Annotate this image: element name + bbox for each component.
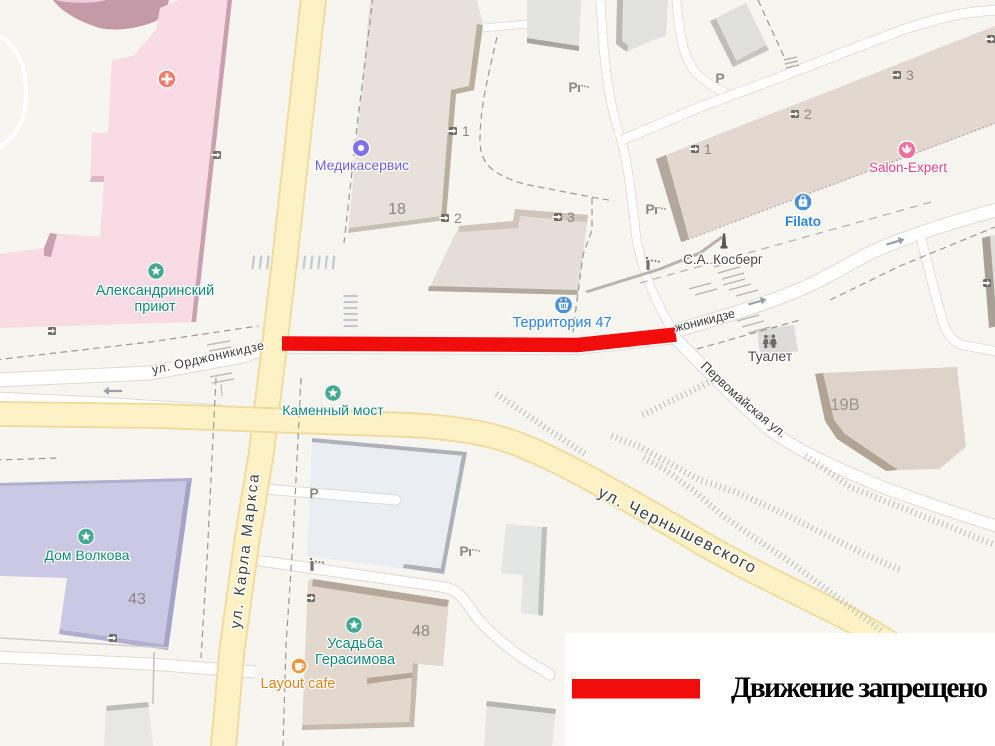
svg-text:Герасимова: Герасимова [315, 652, 396, 668]
svg-text:P: P [309, 485, 318, 501]
svg-text:Туалет: Туалет [748, 348, 793, 364]
svg-text:С.А. Косберг: С.А. Косберг [683, 252, 763, 267]
svg-text:3: 3 [567, 209, 575, 225]
svg-text:19В: 19В [830, 396, 859, 414]
svg-text:3: 3 [906, 67, 914, 83]
svg-text:Дом Волкова: Дом Волкова [44, 547, 129, 563]
svg-text:18: 18 [388, 201, 406, 218]
svg-text:Медикасервис: Медикасервис [315, 157, 409, 173]
svg-text:Salon-Expert: Salon-Expert [869, 160, 947, 175]
svg-text:P: P [568, 79, 577, 95]
svg-text:2: 2 [804, 106, 812, 122]
svg-text:48: 48 [412, 623, 430, 640]
svg-text:43: 43 [128, 591, 146, 608]
svg-text:Александринский: Александринский [96, 283, 214, 299]
svg-text:Усадьба: Усадьба [327, 636, 384, 652]
svg-text:Территория 47: Территория 47 [512, 315, 611, 331]
svg-text:1: 1 [462, 123, 470, 139]
svg-text:P: P [459, 543, 468, 559]
svg-text:P: P [715, 70, 724, 86]
svg-text:2: 2 [454, 210, 462, 226]
svg-text:Каменный мост: Каменный мост [282, 402, 384, 418]
svg-text:Движение запрещено: Движение запрещено [731, 672, 988, 704]
svg-text:Filato: Filato [785, 214, 821, 229]
svg-text:Layout cafe: Layout cafe [261, 676, 336, 692]
svg-text:1: 1 [704, 141, 712, 157]
svg-text:P: P [645, 201, 654, 217]
svg-text:приют: приют [134, 299, 176, 315]
